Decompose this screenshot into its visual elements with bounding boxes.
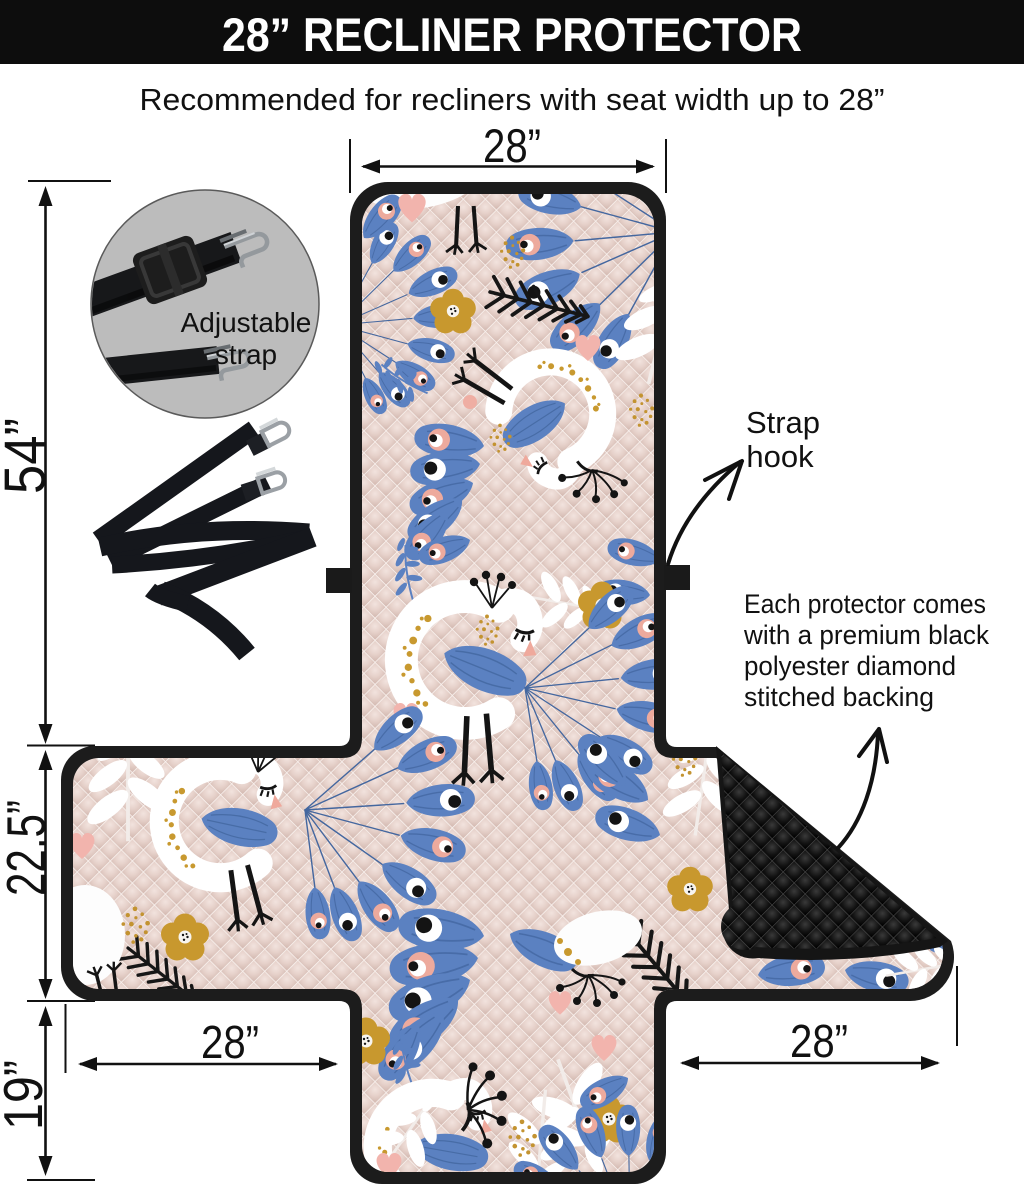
svg-text:strap: strap [215, 339, 277, 370]
svg-text:Adjustable: Adjustable [181, 307, 312, 338]
svg-text:28”: 28” [201, 1016, 259, 1068]
svg-text:hook: hook [746, 439, 814, 474]
svg-text:28” RECLINER PROTECTOR: 28” RECLINER PROTECTOR [222, 8, 802, 61]
svg-text:Each protector comes: Each protector comes [744, 589, 986, 619]
svg-text:Recommended for recliners with: Recommended for recliners with seat widt… [140, 82, 885, 117]
svg-text:polyester diamond: polyester diamond [744, 651, 956, 681]
svg-text:28”: 28” [483, 119, 541, 172]
svg-text:with a premium black: with a premium black [743, 620, 990, 650]
svg-text:28”: 28” [790, 1015, 848, 1067]
svg-text:54”: 54” [0, 418, 58, 494]
svg-text:22.5”: 22.5” [0, 800, 57, 896]
svg-text:19”: 19” [0, 1060, 54, 1130]
svg-text:Strap: Strap [746, 405, 820, 440]
svg-text:stitched backing: stitched backing [744, 682, 934, 712]
